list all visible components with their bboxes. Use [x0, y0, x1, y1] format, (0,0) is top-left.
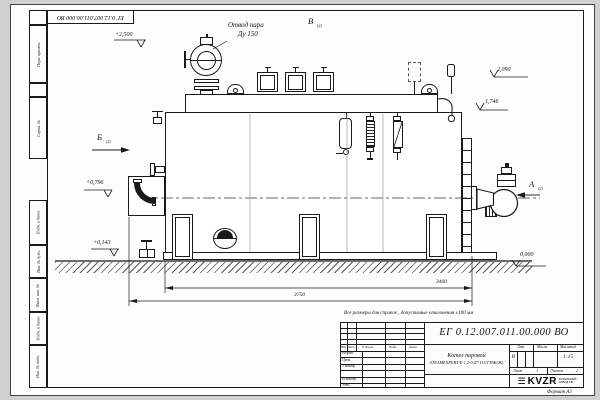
- steam-valve-pipe: [200, 90, 213, 95]
- view-label-v-ref: (2): [317, 24, 322, 28]
- scale-value: 1:15: [563, 355, 573, 361]
- col-list: Лист: [348, 346, 355, 349]
- lifting-lug-right-hole: [427, 88, 432, 93]
- col-izm: Изм: [341, 346, 347, 349]
- safety-valve-2-stem: [295, 67, 296, 72]
- top-stamp-number: ЕГ 0.12.007.011.00.000 ВО: [57, 14, 124, 20]
- lifting-lug-left-hole: [233, 88, 238, 93]
- col-podp: Подп.: [389, 346, 397, 349]
- burner-motor-line: [497, 180, 516, 181]
- drawing-sheet: Перв. примен. Справ. № Подп. и дата Инв.…: [0, 0, 600, 400]
- tb-rev1: [340, 328, 424, 329]
- tb-v-mass: [557, 344, 558, 367]
- sheet-label: Лист: [513, 369, 522, 373]
- safety-valve-3-stem: [323, 67, 324, 72]
- elevation-2500: +2,500: [115, 32, 133, 38]
- support-leg-1-inner: [175, 217, 190, 257]
- product-model: STEAMEXPERT-Е-1,2-0,07-115-ГПЖ(Ж): [430, 361, 504, 365]
- col-doc: N докум.: [362, 346, 374, 349]
- margin-cell-empty-1: [29, 10, 47, 25]
- margin-cell-sprav: Справ. №: [29, 97, 47, 159]
- safety-valve-1-stem: [267, 67, 268, 72]
- elevation-1746: 1,746: [485, 99, 499, 105]
- steam-drum: [185, 94, 438, 113]
- steam-valve-cap: [200, 37, 213, 45]
- drain-valve-split: [147, 249, 148, 258]
- reference-note: Все размеры для справок , допустимые отк…: [344, 311, 473, 316]
- tb-row1: [340, 357, 424, 358]
- lit-header: Лит.: [517, 346, 525, 350]
- tb-r-h1: [509, 351, 584, 352]
- dimension-3400: 3400: [436, 280, 447, 286]
- logo-text: KVZR: [528, 376, 557, 387]
- steam-valve-stem: [206, 34, 208, 37]
- view-label-a: А: [529, 180, 534, 189]
- sheets-value: 2: [576, 369, 578, 374]
- gauge-2-foot: [367, 158, 373, 160]
- margin-cell-podp-data-2: Подп. и дата: [29, 312, 47, 345]
- role-tkontr: Т.контр.: [342, 365, 356, 369]
- phantom-fitting-stem: [414, 82, 415, 94]
- steam-valve-handwheel-link: [186, 59, 191, 60]
- tb-v-lit: [533, 344, 534, 367]
- burner-gearbox: [501, 167, 512, 174]
- safety-valve-2-inner: [288, 75, 303, 90]
- view-label-b-ref: (2): [106, 140, 111, 144]
- safety-valve-1-inner: [260, 75, 275, 90]
- title-doc-number: ЕГ 0.12.007.011.00.000 ВО: [424, 322, 584, 344]
- tb-v-lit-sub1: [517, 351, 518, 368]
- elevation-0796: +0,796: [86, 180, 104, 186]
- col-date: Дата: [409, 346, 417, 349]
- margin-cell-empty-2: [29, 83, 47, 97]
- sheets-label: Листов: [550, 369, 563, 373]
- margin-cell-perv-primen: Перв. примен.: [29, 25, 47, 83]
- logo-subtext: КОТЕЛЬНЫЙ ЗАВОД РФ: [559, 378, 577, 385]
- burner-cap: [505, 163, 509, 167]
- sheet-value: 1: [536, 369, 538, 374]
- kvzr-logo-icon: ☰: [518, 377, 526, 386]
- view-label-v: В: [308, 17, 313, 26]
- phantom-fitting-outline: [408, 62, 421, 82]
- tb-v-sheet: [547, 367, 548, 374]
- tb-rev2: [340, 333, 424, 334]
- elevation-0143: +0,143: [93, 240, 111, 246]
- view-label-b: Б: [97, 133, 102, 142]
- role-razrab: Разраб.: [342, 352, 354, 356]
- margin-cell-vzam-inv: Взам. инв. №: [29, 278, 47, 312]
- vent-valve-body: [153, 117, 162, 124]
- thermometer-stem: [451, 77, 452, 94]
- product-name-cell: Котел паровой STEAMEXPERT-Е-1,2-0,07-115…: [424, 344, 509, 374]
- tb-row3: [340, 370, 424, 371]
- tb-v-lit-sub2: [525, 351, 526, 368]
- left-nozzle-upper: [155, 166, 165, 173]
- logo-sub2: ЗАВОД РФ: [559, 381, 577, 384]
- thermometer-well: [447, 64, 455, 77]
- tb-v-doc: [385, 322, 386, 388]
- steam-outlet-callout-line1: Отвод пара: [228, 22, 264, 29]
- support-leg-2-inner: [302, 217, 317, 257]
- steam-valve-axis: [191, 60, 221, 61]
- safety-valve-3-inner: [316, 75, 331, 90]
- feed-unit-flange-right: [152, 197, 156, 206]
- elevation-0000: 0,000: [520, 252, 534, 258]
- format-label: Формат А3: [547, 390, 572, 395]
- logo-cell: ☰ KVZR КОТЕЛЬНЫЙ ЗАВОД РФ: [510, 375, 584, 388]
- top-stamp-box: ЕГ 0.12.007.011.00.000 ВО: [47, 10, 134, 24]
- safety-valve-3-cap: [321, 67, 327, 68]
- steam-valve-flange-upper: [194, 79, 219, 83]
- margin-cell-inv-podl: Инв. № подл.: [29, 345, 47, 388]
- drain-valve-stem: [146, 241, 147, 249]
- margin-cell-podp-data-1: Подп. и дата: [29, 200, 47, 245]
- elevation-2090: 2,090: [497, 67, 511, 73]
- lit-value: И: [512, 355, 516, 360]
- margin-cell-inv-dubl: Инв. № дубл.: [29, 245, 47, 278]
- ground-hatch: [55, 262, 532, 273]
- gauge-3-drain: [397, 153, 398, 160]
- tb-row5: [340, 383, 424, 384]
- role-utv: Утв.: [342, 384, 350, 388]
- burner-fan-fins: [485, 206, 497, 217]
- burner-mount-flange: [471, 186, 477, 210]
- level-column: [339, 118, 352, 149]
- spring-gauge: [366, 121, 375, 147]
- role-nkontr: Н.контр.: [342, 378, 357, 382]
- mass-header: Масса: [537, 346, 547, 350]
- steam-outlet-callout-line2: Ду 150: [238, 31, 258, 38]
- product-name: Котел паровой: [447, 353, 485, 359]
- level-column-spout: [336, 153, 343, 154]
- tb-v-list: [356, 322, 357, 351]
- support-leg-3-inner: [429, 217, 444, 257]
- tb-rev3: [340, 339, 424, 340]
- safety-valve-1-cap: [265, 67, 271, 68]
- feed-unit-flange-top: [133, 179, 142, 183]
- dimension-3750: 3750: [294, 293, 305, 299]
- gauge-glass: [393, 121, 403, 148]
- scale-header: Масштаб: [560, 346, 576, 350]
- safety-valve-2-cap: [293, 67, 299, 68]
- role-prov: Пров.: [342, 359, 351, 363]
- manhole-line: [214, 238, 236, 239]
- tb-v-podp: [405, 322, 406, 388]
- view-label-a-ref: (2): [538, 187, 543, 191]
- level-column-valve: [343, 149, 349, 155]
